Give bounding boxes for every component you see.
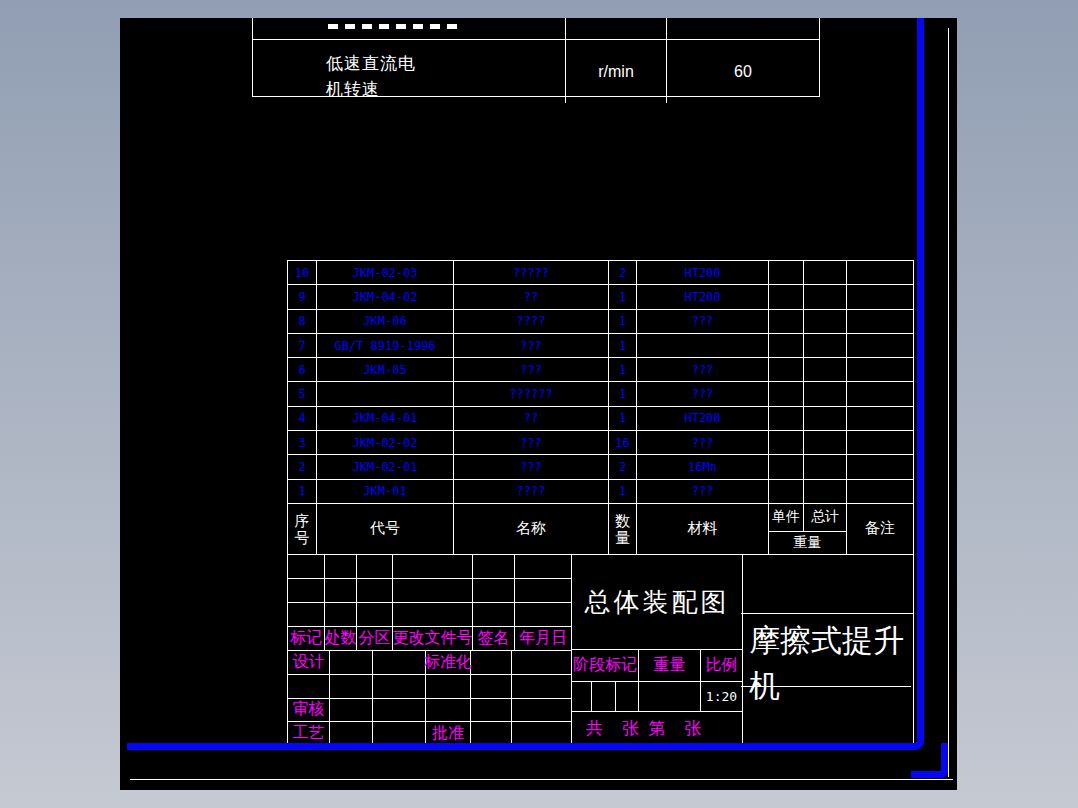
bom-code: JKM-05 [317, 358, 454, 382]
bom-qty: 16 [609, 431, 637, 455]
label-scale: 比例 [701, 650, 742, 681]
bom-seq: 6 [288, 358, 317, 382]
label-design: 设计 [288, 651, 330, 675]
label-review: 审核 [288, 699, 330, 723]
bom-header-weight-group: 单件 总计 重量 [769, 504, 847, 554]
label-weight: 重量 [639, 650, 701, 681]
bom-name: ??? [454, 455, 609, 479]
bom-total-weight [804, 455, 847, 479]
bom-name: ?? [454, 285, 609, 309]
paper-edge-vertical [948, 28, 949, 777]
table-row: 8 JKM-06 ???? 1 ??? [288, 310, 913, 334]
bom-name: ?????? [454, 382, 609, 406]
bom-remark [847, 261, 913, 285]
bom-remark [847, 407, 913, 431]
table-row: 10 JKM-02-03 ????? 2 HT200 [288, 261, 913, 285]
bom-header-code: 代号 [317, 504, 454, 554]
bom-total-weight [804, 407, 847, 431]
spec-row-label-cell: 低速直流电机转速 [253, 40, 566, 103]
revision-header-count: 处数 [325, 627, 357, 651]
bom-code: JKM-01 [317, 480, 454, 504]
table-row: 5 ?????? 1 ??? [288, 382, 913, 406]
spec-row-label: 低速直流电机转速 [326, 51, 420, 103]
bom-material: ??? [637, 431, 769, 455]
bom-unit-weight [769, 285, 804, 309]
bom-seq: 9 [288, 285, 317, 309]
bom-seq: 8 [288, 310, 317, 334]
bom-unit-weight [769, 455, 804, 479]
clipped-text-fragments [328, 24, 460, 29]
bom-material: ??? [637, 310, 769, 334]
bom-total-weight [804, 431, 847, 455]
bom-name: ?? [454, 407, 609, 431]
label-approve: 批准 [426, 722, 471, 746]
bom-remark [847, 334, 913, 358]
bom-total-weight [804, 334, 847, 358]
bom-name: ???? [454, 480, 609, 504]
spec-clipped-cell [253, 18, 566, 40]
bom-unit-weight [769, 431, 804, 455]
bom-header-total-weight: 总计 [804, 504, 846, 531]
revision-table: 标记 处数 分区 更改文件号 签名 年月日 [288, 555, 571, 651]
spec-clipped-cell [667, 18, 819, 40]
bom-material: HT200 [637, 285, 769, 309]
bom-header-seq: 序号 [288, 504, 317, 554]
bom-qty: 1 [609, 407, 637, 431]
table-row: 6 JKM-05 ??? 1 ??? [288, 358, 913, 382]
bom-qty: 1 [609, 480, 637, 504]
bom-qty: 1 [609, 310, 637, 334]
bom-unit-weight [769, 334, 804, 358]
bom-unit-weight [769, 261, 804, 285]
spec-clipped-cell [566, 18, 667, 40]
drawing-title: 总体装配图 [572, 555, 742, 649]
bom-code: JKM-06 [317, 310, 454, 334]
bom-seq: 5 [288, 382, 317, 406]
bom-qty: 1 [609, 358, 637, 382]
scale-value: 1:20 [701, 682, 742, 711]
bom-qty: 1 [609, 382, 637, 406]
product-name: 摩擦式提升机 [749, 618, 909, 708]
bom-header-remark: 备注 [847, 504, 913, 554]
spec-table: 低速直流电机转速 r/min 60 [252, 18, 820, 97]
title-block: 标记 处数 分区 更改文件号 签名 年月日 设计 标准化 审核 工艺 批准 总体… [287, 554, 914, 748]
bom-material: HT200 [637, 261, 769, 285]
bom-table: 10 JKM-02-03 ????? 2 HT200 9 JKM-04-02 ?… [287, 260, 914, 555]
table-row: 3 JKM-02-02 ??? 16 ??? [288, 431, 913, 455]
label-standardization: 标准化 [426, 651, 471, 675]
bom-unit-weight [769, 407, 804, 431]
bom-header-weight: 重量 [769, 531, 846, 554]
bom-remark [847, 431, 913, 455]
bom-header-name: 名称 [454, 504, 609, 554]
drawing-number-cell [741, 555, 913, 614]
revision-header-mark: 标记 [288, 627, 325, 651]
bom-remark [847, 358, 913, 382]
bom-name: ???? [454, 310, 609, 334]
bom-code: GB/T 8919-1996 [317, 334, 454, 358]
bom-header-unit-weight: 单件 [769, 504, 804, 531]
bom-code: JKM-02-01 [317, 455, 454, 479]
bom-code: JKM-04-01 [317, 407, 454, 431]
bom-qty: 1 [609, 334, 637, 358]
bom-name: ??? [454, 431, 609, 455]
bom-remark [847, 310, 913, 334]
table-row: 9 JKM-04-02 ?? 1 HT200 [288, 285, 913, 309]
bom-code [317, 382, 454, 406]
bom-name: ??? [454, 358, 609, 382]
signature-table: 设计 标准化 审核 工艺 批准 [288, 651, 571, 746]
bom-seq: 4 [288, 407, 317, 431]
bom-remark [847, 455, 913, 479]
title-block-right: 摩擦式提升机 [741, 555, 913, 746]
stage-header-row: 阶段标记 重量 比例 [572, 649, 742, 681]
revision-header-signature: 签名 [473, 627, 515, 651]
bom-seq: 7 [288, 334, 317, 358]
product-name-cell: 摩擦式提升机 [741, 618, 913, 749]
bom-unit-weight [769, 358, 804, 382]
bom-material: ??? [637, 358, 769, 382]
bom-material: ??? [637, 382, 769, 406]
bom-code: JKM-02-02 [317, 431, 454, 455]
paper-edge-horizontal [130, 779, 953, 780]
bom-total-weight [804, 285, 847, 309]
bom-qty: 2 [609, 261, 637, 285]
spec-row-unit: r/min [566, 40, 667, 103]
title-block-middle: 总体装配图 阶段标记 重量 比例 1:20 共 张 第 张 [571, 555, 743, 746]
bom-qty: 1 [609, 285, 637, 309]
bom-total-weight [804, 310, 847, 334]
bom-seq: 2 [288, 455, 317, 479]
bom-seq: 1 [288, 480, 317, 504]
table-row: 2 JKM-02-01 ??? 2 16Mn [288, 455, 913, 479]
bom-material: 16Mn [637, 455, 769, 479]
bom-seq: 3 [288, 431, 317, 455]
table-row: 7 GB/T 8919-1996 ??? 1 [288, 334, 913, 358]
table-row: 4 JKM-04-01 ?? 1 HT200 [288, 407, 913, 431]
bom-unit-weight [769, 310, 804, 334]
outer-blue-frame-corner [911, 743, 948, 778]
revision-header-zone: 分区 [357, 627, 393, 651]
bom-name: ????? [454, 261, 609, 285]
bom-total-weight [804, 382, 847, 406]
bom-header-qty: 数量 [609, 504, 637, 554]
bom-remark [847, 480, 913, 504]
bom-code: JKM-04-02 [317, 285, 454, 309]
bom-seq: 10 [288, 261, 317, 285]
bom-remark [847, 382, 913, 406]
bom-total-weight [804, 480, 847, 504]
bom-unit-weight [769, 480, 804, 504]
spec-row-value: 60 [667, 40, 819, 103]
label-process: 工艺 [288, 722, 330, 746]
revision-header-date: 年月日 [515, 627, 571, 651]
bom-total-weight [804, 358, 847, 382]
bom-material: ??? [637, 480, 769, 504]
bom-header-material: 材料 [637, 504, 769, 554]
bom-unit-weight [769, 382, 804, 406]
bom-name: ??? [454, 334, 609, 358]
bom-header-row: 序号 代号 名称 数量 材料 单件 总计 重量 备注 [288, 504, 913, 554]
bom-total-weight [804, 261, 847, 285]
label-stage-mark: 阶段标记 [572, 650, 639, 681]
bom-code: JKM-02-03 [317, 261, 454, 285]
bom-qty: 2 [609, 455, 637, 479]
revision-header-docno: 更改文件号 [393, 627, 473, 651]
table-row: 1 JKM-01 ???? 1 ??? [288, 480, 913, 504]
sheet-info: 共 张 第 张 [572, 711, 742, 744]
bom-remark [847, 285, 913, 309]
bom-material [637, 334, 769, 358]
stage-cells-row: 1:20 [572, 681, 742, 711]
bom-material: HT200 [637, 407, 769, 431]
cad-drawing-canvas[interactable]: 低速直流电机转速 r/min 60 10 JKM-02-03 ????? 2 H… [120, 18, 957, 790]
